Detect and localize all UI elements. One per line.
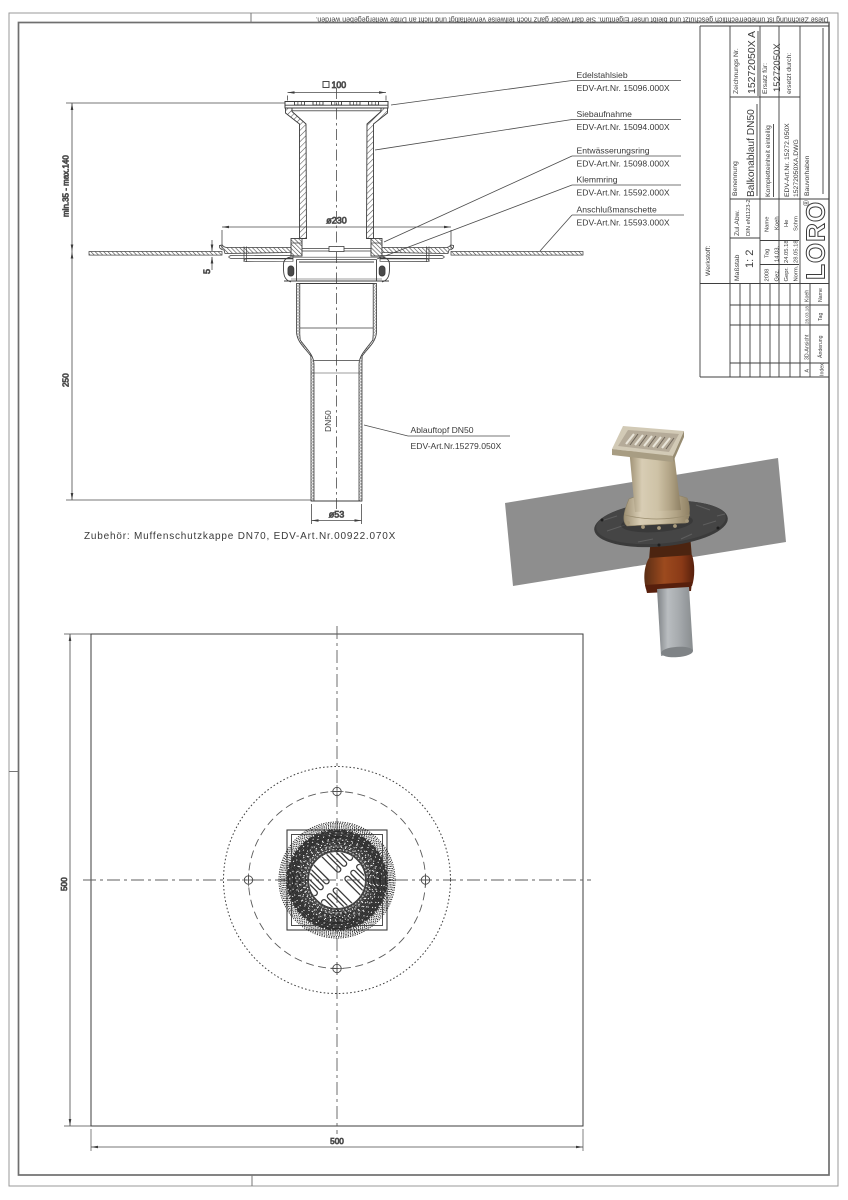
svg-text:Klemmring: Klemmring — [577, 175, 618, 185]
svg-text:24.05.18: 24.05.18 — [784, 240, 790, 263]
svg-text:Siebaufnahme: Siebaufnahme — [577, 109, 633, 119]
svg-text:EDV-Art.Nr. 15094.000X: EDV-Art.Nr. 15094.000X — [577, 122, 670, 132]
svg-text:EDV-Art.Nr.15279.050X: EDV-Art.Nr.15279.050X — [411, 441, 502, 451]
svg-text:15272050X A: 15272050X A — [746, 31, 758, 94]
svg-text:Zubehör: Muffenschutzkappe D: Zubehör: Muffenschutzkappe DN70, EDV-Art… — [84, 531, 396, 542]
svg-text:Koeh: Koeh — [805, 290, 811, 302]
svg-text:Name: Name — [765, 217, 771, 232]
svg-text:A: A — [805, 369, 811, 373]
svg-text:Kompletteinheit einteilig: Kompletteinheit einteilig — [765, 125, 772, 197]
svg-text:®: ® — [802, 200, 811, 206]
svg-text:1: 2: 1: 2 — [744, 250, 756, 268]
svg-text:Edelstahlsieb: Edelstahlsieb — [577, 70, 628, 80]
svg-text:Name: Name — [818, 288, 824, 302]
svg-text:Schm: Schm — [794, 216, 800, 231]
svg-text:Index: Index — [820, 363, 826, 376]
svg-text:5: 5 — [202, 269, 212, 274]
svg-text:EDV-Art.Nr. 15593.000X: EDV-Art.Nr. 15593.000X — [577, 218, 670, 228]
svg-text:Änderung: Änderung — [817, 335, 824, 358]
svg-text:Gez.: Gez. — [775, 269, 781, 282]
svg-text:15272050X: 15272050X — [772, 43, 783, 92]
svg-text:Ablauftopf DN50: Ablauftopf DN50 — [411, 425, 474, 435]
svg-text:Maßstab: Maßstab — [734, 254, 741, 281]
svg-text:28.05.18: 28.05.18 — [794, 240, 800, 263]
svg-text:500: 500 — [330, 1137, 344, 1146]
svg-text:min.35 - max.140: min.35 - max.140 — [62, 155, 71, 217]
svg-text:Tag: Tag — [765, 249, 771, 258]
svg-text:Benennung: Benennung — [732, 161, 739, 196]
svg-text:Zul.Abw.: Zul.Abw. — [734, 210, 741, 236]
svg-text:Koeh: Koeh — [775, 216, 781, 230]
svg-text:ersetzt durch:: ersetzt durch: — [786, 53, 793, 94]
svg-text:100: 100 — [332, 80, 347, 90]
svg-text:Balkonablauf DN50: Balkonablauf DN50 — [746, 109, 757, 197]
svg-text:Ersatz für:: Ersatz für: — [762, 63, 769, 94]
svg-text:EDV-Art.Nr. 15592.000X: EDV-Art.Nr. 15592.000X — [577, 188, 670, 198]
svg-text:EDV-Art.Nr. 15272.050X: EDV-Art.Nr. 15272.050X — [784, 123, 791, 197]
svg-text:Tag: Tag — [818, 313, 824, 321]
svg-text:Diese Zeichnung ist urheberrec: Diese Zeichnung ist urheberrechtlich ges… — [315, 15, 828, 22]
svg-text:14.03.: 14.03. — [775, 245, 781, 262]
svg-text:3D-Ansicht: 3D-Ansicht — [805, 334, 811, 360]
svg-text:LORO: LORO — [801, 201, 831, 280]
svg-text:ø53: ø53 — [329, 510, 345, 520]
svg-text:EDV-Art.Nr. 15096.000X: EDV-Art.Nr. 15096.000X — [577, 83, 670, 93]
svg-text:2008: 2008 — [765, 269, 771, 282]
svg-text:EDV-Art.Nr. 15098.000X: EDV-Art.Nr. 15098.000X — [577, 159, 670, 169]
svg-text:Zeichnungs Nr.: Zeichnungs Nr. — [733, 48, 740, 94]
svg-text:28.03.18: 28.03.18 — [805, 306, 810, 324]
svg-text:250: 250 — [62, 373, 71, 387]
svg-text:ø230: ø230 — [326, 216, 347, 226]
svg-text:15272050XA.DWG: 15272050XA.DWG — [793, 139, 800, 197]
svg-text:Anschlußmanschette: Anschlußmanschette — [577, 205, 657, 215]
svg-text:He: He — [784, 220, 790, 227]
svg-text:500: 500 — [60, 877, 69, 891]
svg-text:DIN eN1123-2: DIN eN1123-2 — [746, 199, 752, 236]
svg-text:Entwässerungsring: Entwässerungsring — [577, 146, 650, 156]
svg-text:Gepr.: Gepr. — [784, 267, 790, 282]
svg-text:Werkstoff:: Werkstoff: — [705, 246, 712, 276]
svg-text:Bauvorhaben: Bauvorhaben — [804, 155, 811, 196]
svg-text:Norm.: Norm. — [794, 265, 800, 281]
svg-text:DN50: DN50 — [323, 410, 333, 432]
